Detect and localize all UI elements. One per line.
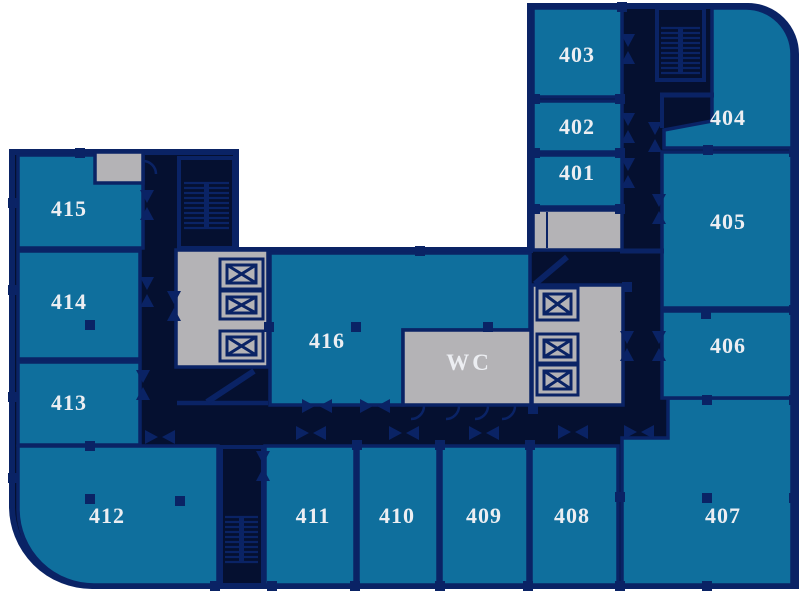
room-416-label: 416 xyxy=(309,328,345,353)
room-411-label: 411 xyxy=(296,503,331,528)
floor-plan-canvas: 401 402 403 404 405 406 407 408 409 410 … xyxy=(0,0,800,591)
room-413-label: 413 xyxy=(51,390,87,415)
stair-stringer xyxy=(239,517,244,562)
elevator-bank-left xyxy=(220,259,263,361)
elevator-icon xyxy=(220,259,263,289)
room-415-label: 415 xyxy=(51,196,87,221)
room-401-label: 401 xyxy=(559,160,595,185)
floor-plan-page: 401 402 403 404 405 406 407 408 409 410 … xyxy=(0,0,800,591)
service-room-top-left xyxy=(95,152,143,183)
elevator-icon xyxy=(220,291,263,319)
room-406-label: 406 xyxy=(710,333,746,358)
stair-stringer xyxy=(204,183,209,228)
room-403-label: 403 xyxy=(559,42,595,67)
room-409-label: 409 xyxy=(466,503,502,528)
room-404-label: 404 xyxy=(710,105,746,130)
wc-label: WC xyxy=(446,350,492,375)
stair-stringer xyxy=(678,28,683,73)
room-407-label: 407 xyxy=(705,503,741,528)
elevator-icon xyxy=(537,365,578,395)
room-414-label: 414 xyxy=(51,289,87,314)
room-405-label: 405 xyxy=(710,209,746,234)
elevator-icon xyxy=(537,288,578,320)
room-412-label: 412 xyxy=(89,503,125,528)
elevator-bank-right xyxy=(537,288,578,395)
elevator-icon xyxy=(220,331,263,361)
room-408-label: 408 xyxy=(554,503,590,528)
room-402-label: 402 xyxy=(559,114,595,139)
elevator-icon xyxy=(537,334,578,363)
room-410-label: 410 xyxy=(379,503,415,528)
